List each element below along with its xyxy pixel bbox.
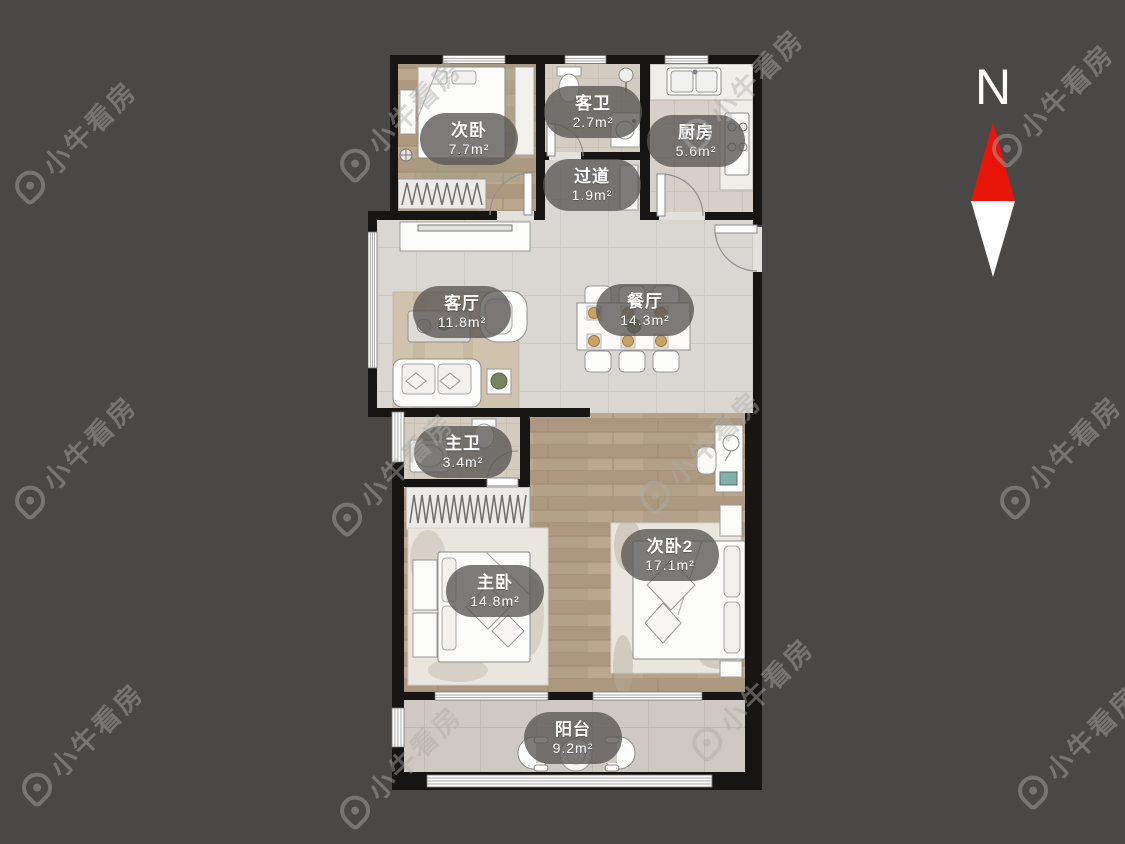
room-area: 5.6m² [676, 143, 717, 161]
room-name: 客厅 [444, 293, 480, 314]
watermark: 小牛看房 [12, 672, 151, 811]
room-area: 9.2m² [553, 740, 594, 758]
room-name: 次卧2 [647, 536, 693, 557]
room-area: 1.9m² [572, 187, 613, 205]
room-label-bedroom2: 次卧 7.7m² [420, 113, 518, 165]
watermark: 小牛看房 [5, 385, 144, 524]
room-area: 14.3m² [620, 312, 670, 330]
watermark: 小牛看房 [5, 70, 144, 209]
room-label-balcony: 阳台 9.2m² [524, 712, 622, 764]
room-label-kitchen: 厨房 5.6m² [647, 115, 745, 167]
compass: N [960, 62, 1026, 277]
watermark-logo-icon [326, 496, 368, 538]
room-label-dining-room: 餐厅 14.3m² [596, 284, 694, 336]
room-name: 阳台 [555, 719, 591, 740]
room-area: 11.8m² [438, 314, 487, 332]
room-name: 次卧 [451, 120, 487, 141]
room-label-living-room: 客厅 11.8m² [413, 286, 511, 338]
room-name: 厨房 [678, 122, 714, 143]
room-name: 餐厅 [627, 291, 663, 312]
room-label-bedroom3: 次卧2 17.1m² [621, 529, 719, 581]
compass-n-label: N [960, 62, 1026, 112]
room-area: 7.7m² [449, 141, 490, 159]
compass-arrow-icon [969, 122, 1017, 277]
floor-plan: 次卧 7.7m² 客卫 2.7m² 厨房 5.6m² 过道 1.9m² 客厅 1… [368, 55, 762, 790]
watermark-logo-icon [9, 479, 51, 521]
room-label-hallway: 过道 1.9m² [543, 159, 641, 211]
watermark: 小牛看房 [1008, 675, 1125, 814]
room-name: 主卫 [445, 433, 481, 454]
room-area: 2.7m² [573, 114, 614, 132]
room-name: 客卫 [575, 93, 611, 114]
room-area: 14.8m² [470, 593, 520, 611]
page: { "watermark": { "text": "小牛看房" }, "comp… [0, 0, 1125, 844]
watermark: 小牛看房 [990, 385, 1125, 524]
watermark-logo-icon [334, 789, 376, 831]
room-label-master-bedroom: 主卧 14.8m² [446, 565, 544, 617]
watermark-logo-icon [994, 479, 1036, 521]
room-name: 过道 [574, 166, 610, 187]
watermark-logo-icon [16, 766, 58, 808]
room-area: 17.1m² [645, 557, 695, 575]
watermark-logo-icon [9, 164, 51, 206]
room-label-guest-bathroom: 客卫 2.7m² [544, 86, 642, 138]
master-wardrobe [406, 487, 530, 530]
watermark-logo-icon [1012, 769, 1054, 811]
room-label-master-bathroom: 主卫 3.4m² [414, 426, 512, 478]
room-area: 3.4m² [443, 454, 484, 472]
room-name: 主卧 [477, 572, 513, 593]
